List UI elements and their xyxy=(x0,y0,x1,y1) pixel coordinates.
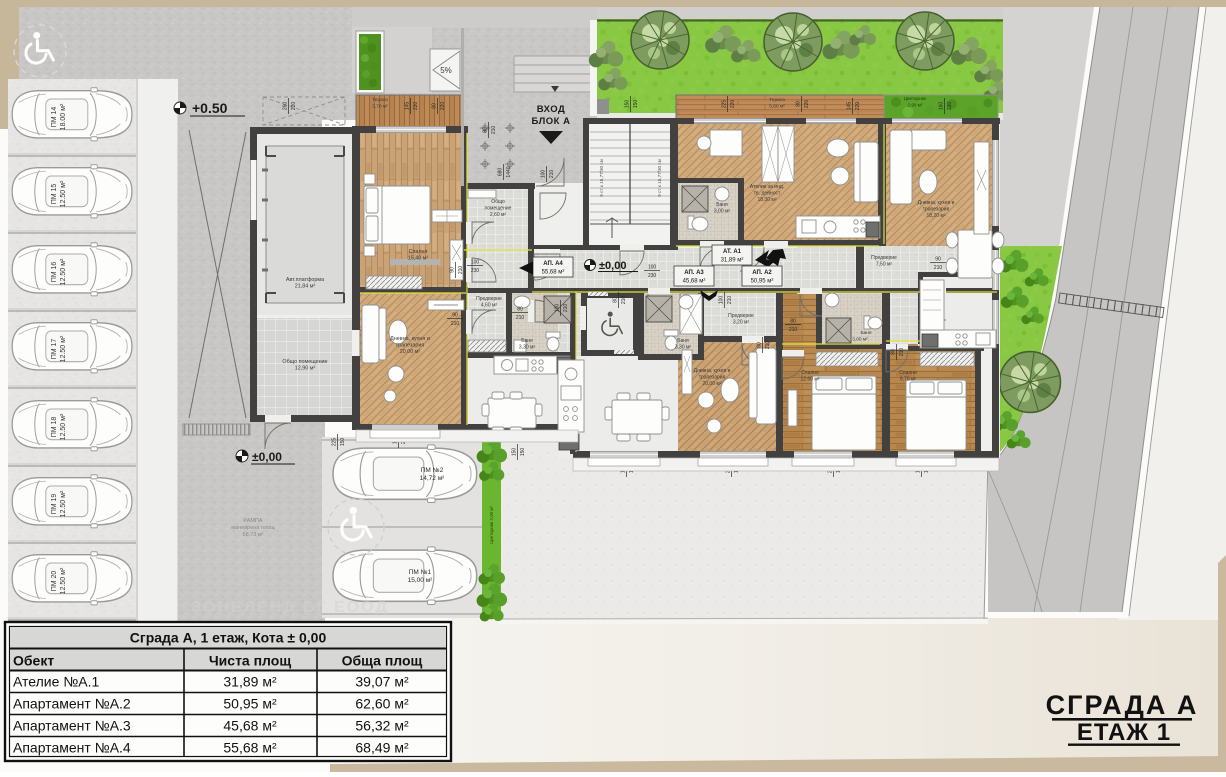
svg-text:3,20 м²: 3,20 м² xyxy=(733,319,750,325)
svg-text:2,60 м²: 2,60 м² xyxy=(490,212,507,218)
svg-text:АТ. А1: АТ. А1 xyxy=(723,249,742,255)
svg-text:Авт.платформа: Авт.платформа xyxy=(286,277,324,283)
svg-text:210: 210 xyxy=(934,265,943,271)
svg-text:220: 220 xyxy=(413,102,419,111)
svg-text:20,00 м²: 20,00 м² xyxy=(702,381,721,387)
svg-text:31,89 м²: 31,89 м² xyxy=(721,258,744,264)
svg-text:150: 150 xyxy=(633,100,639,109)
svg-text:210: 210 xyxy=(516,315,525,321)
svg-text:9 ст х 15,77/30 см: 9 ст х 15,77/30 см xyxy=(657,159,662,197)
svg-text:АП. А3: АП. А3 xyxy=(684,270,704,276)
svg-text:150: 150 xyxy=(512,448,518,457)
svg-text:Дневна, кухня и: Дневна, кухня и xyxy=(694,368,731,374)
svg-text:Дневна, кухня и: Дневна, кухня и xyxy=(918,200,955,206)
svg-text:55,68 м²: 55,68 м² xyxy=(542,270,565,276)
svg-text:100: 100 xyxy=(719,296,725,305)
svg-text:Апартамент №А.2: Апартамент №А.2 xyxy=(13,696,131,712)
svg-text:220: 220 xyxy=(855,102,861,111)
svg-text:12.50 м²: 12.50 м² xyxy=(60,413,67,440)
svg-text:Ателие №А.1: Ателие №А.1 xyxy=(13,674,100,690)
svg-text:100: 100 xyxy=(541,170,547,179)
svg-text:210: 210 xyxy=(451,321,460,327)
svg-text:145: 145 xyxy=(405,102,411,111)
svg-text:210: 210 xyxy=(765,341,771,350)
svg-text:80: 80 xyxy=(483,127,489,133)
svg-text:ПМ 15: ПМ 15 xyxy=(51,184,58,205)
svg-text:160: 160 xyxy=(939,102,945,111)
svg-text:+0.50: +0.50 xyxy=(192,100,228,116)
svg-text:Общо помещение: Общо помещение xyxy=(282,359,327,365)
svg-text:ПМ 20: ПМ 20 xyxy=(51,571,58,592)
svg-text:Баня: Баня xyxy=(860,330,871,336)
svg-text:230: 230 xyxy=(648,273,657,279)
svg-text:9,75 м²: 9,75 м² xyxy=(900,376,917,382)
svg-text:АП. А4: АП. А4 xyxy=(543,261,563,267)
svg-text:145: 145 xyxy=(847,102,853,111)
svg-text:39,07 м²: 39,07 м² xyxy=(355,674,409,690)
svg-text:ПМ 17: ПМ 17 xyxy=(51,339,58,360)
svg-text:55,68 м²: 55,68 м² xyxy=(223,740,277,756)
svg-text:Апартамент №А.4: Апартамент №А.4 xyxy=(13,740,131,756)
svg-text:Ателие за инд.: Ателие за инд. xyxy=(750,184,784,190)
svg-text:210: 210 xyxy=(899,348,905,357)
svg-text:56,32 м²: 56,32 м² xyxy=(355,718,409,734)
svg-text:СГРАДА А: СГРАДА А xyxy=(1046,690,1199,720)
svg-text:3,70 м²: 3,70 м² xyxy=(372,103,388,109)
svg-text:3,00 м²: 3,00 м² xyxy=(852,336,868,342)
svg-text:маневрена площ: маневрена площ xyxy=(231,525,275,531)
svg-text:Дневна, кухня и: Дневна, кухня и xyxy=(390,336,430,342)
svg-text:18.00 м²: 18.00 м² xyxy=(60,103,67,130)
svg-text:21,84 м²: 21,84 м² xyxy=(295,283,316,289)
svg-text:Общо: Общо xyxy=(491,199,505,205)
svg-text:225: 225 xyxy=(332,438,338,447)
svg-text:12.50 м²: 12.50 м² xyxy=(60,335,67,362)
svg-text:210: 210 xyxy=(491,126,497,135)
svg-text:15,00 м²: 15,00 м² xyxy=(408,577,434,584)
svg-text:260: 260 xyxy=(283,102,289,111)
svg-text:помещение: помещение xyxy=(485,205,512,211)
svg-text:210: 210 xyxy=(549,170,555,179)
svg-text:80: 80 xyxy=(796,101,802,107)
svg-text:45,68 м²: 45,68 м² xyxy=(223,718,277,734)
svg-text:68.73 м²: 68.73 м² xyxy=(243,532,264,538)
svg-text:Баня: Баня xyxy=(521,338,533,344)
svg-text:90: 90 xyxy=(452,313,458,319)
svg-text:9 ст х 15,77/30 см: 9 ст х 15,77/30 см xyxy=(599,159,604,197)
svg-text:БЛОК А: БЛОК А xyxy=(532,116,571,127)
svg-text:210: 210 xyxy=(563,304,569,313)
svg-text:150: 150 xyxy=(625,100,631,109)
svg-text:Баня: Баня xyxy=(677,338,689,344)
svg-text:62,60 м²: 62,60 м² xyxy=(355,696,409,712)
svg-text:90: 90 xyxy=(935,257,941,263)
svg-text:ВХОД: ВХОД xyxy=(537,104,566,115)
svg-text:50,95 м²: 50,95 м² xyxy=(751,279,774,285)
svg-text:220: 220 xyxy=(440,102,446,111)
svg-text:Спалня: Спалня xyxy=(801,370,819,376)
svg-text:18,20 м²: 18,20 м² xyxy=(926,213,945,219)
svg-text:2,90 м²: 2,90 м² xyxy=(908,102,923,107)
svg-text:ЕТАЖ 1: ЕТАЖ 1 xyxy=(1077,719,1171,746)
svg-text:90: 90 xyxy=(450,267,456,273)
svg-text:20,00 м²: 20,00 м² xyxy=(400,349,421,355)
svg-text:15,40 м²: 15,40 м² xyxy=(408,255,429,261)
svg-text:220: 220 xyxy=(804,100,810,109)
svg-text:ПМ 14: ПМ 14 xyxy=(51,107,58,128)
svg-text:12.50 м²: 12.50 м² xyxy=(60,258,67,285)
svg-text:100: 100 xyxy=(471,260,480,266)
svg-text:±0,00: ±0,00 xyxy=(599,260,626,272)
svg-text:14,72 м²: 14,72 м² xyxy=(420,475,446,482)
svg-text:1440: 1440 xyxy=(506,166,512,177)
svg-text:45,68 м²: 45,68 м² xyxy=(683,279,706,285)
svg-text:Обща площ: Обща площ xyxy=(342,653,423,669)
svg-text:Апартамент №А.3: Апартамент №А.3 xyxy=(13,718,131,734)
svg-text:230: 230 xyxy=(471,268,480,274)
svg-text:ПМ 18: ПМ 18 xyxy=(51,417,58,438)
svg-text:Тераса: Тераса xyxy=(769,97,785,103)
svg-text:3,30 м²: 3,30 м² xyxy=(675,344,692,350)
svg-text:Тераса: Тераса xyxy=(372,97,388,103)
svg-text:±0,00: ±0,00 xyxy=(252,450,282,464)
svg-text:Предверие: Предверие xyxy=(728,313,754,319)
svg-text:220: 220 xyxy=(947,102,953,111)
svg-text:Спалня: Спалня xyxy=(409,249,428,255)
svg-text:68,49 м²: 68,49 м² xyxy=(355,740,409,756)
svg-text:12,90 м²: 12,90 м² xyxy=(295,365,316,371)
svg-text:Предверие: Предверие xyxy=(871,255,897,261)
svg-text:Чиста площ: Чиста площ xyxy=(209,653,291,669)
svg-text:80: 80 xyxy=(517,307,523,313)
svg-text:трапезария: трапезария xyxy=(396,342,425,348)
svg-text:3,30 м²: 3,30 м² xyxy=(519,344,536,350)
svg-text:80: 80 xyxy=(432,103,438,109)
svg-text:Спалня: Спалня xyxy=(899,370,917,376)
svg-text:РАМПА: РАМПА xyxy=(243,518,263,524)
svg-text:Цветарник: Цветарник xyxy=(904,96,927,101)
svg-text:АП. А2: АП. А2 xyxy=(752,270,772,276)
svg-text:трапезария: трапезария xyxy=(699,374,726,380)
svg-text:150: 150 xyxy=(520,448,526,457)
svg-text:80: 80 xyxy=(790,319,796,325)
svg-text:Обект: Обект xyxy=(13,653,54,669)
svg-text:12,60 м²: 12,60 м² xyxy=(800,376,819,382)
svg-text:80: 80 xyxy=(613,297,619,303)
svg-text:5%: 5% xyxy=(440,66,452,75)
svg-text:4,60 м²: 4,60 м² xyxy=(481,302,498,308)
svg-text:ПМ 16: ПМ 16 xyxy=(51,262,58,283)
svg-text:5,60 м²: 5,60 м² xyxy=(769,103,785,109)
svg-text:12.50 м²: 12.50 м² xyxy=(60,567,67,594)
svg-text:Баня: Баня xyxy=(716,202,728,208)
svg-text:12.50 м²: 12.50 м² xyxy=(60,490,67,517)
svg-text:220: 220 xyxy=(730,100,736,109)
svg-text:225: 225 xyxy=(722,100,728,109)
svg-text:210: 210 xyxy=(458,266,464,275)
svg-text:210: 210 xyxy=(621,296,627,305)
svg-text:150: 150 xyxy=(340,438,346,447)
svg-text:680: 680 xyxy=(498,168,504,177)
svg-text:220: 220 xyxy=(291,102,297,111)
svg-text:100: 100 xyxy=(555,304,561,313)
svg-text:ПМ 19: ПМ 19 xyxy=(51,494,58,515)
svg-text:50,95 м²: 50,95 м² xyxy=(223,696,277,712)
svg-text:80: 80 xyxy=(757,342,763,348)
svg-text:12.50 м²: 12.50 м² xyxy=(60,180,67,207)
svg-text:210: 210 xyxy=(727,296,733,305)
svg-text:100: 100 xyxy=(648,265,657,271)
svg-text:ЗОНЕЛЕНД БГ ЕООД: ЗОНЕЛЕНД БГ ЕООД xyxy=(191,599,389,616)
svg-text:Сграда А, 1 етаж, Кота ± 0,00: Сграда А, 1 етаж, Кота ± 0,00 xyxy=(130,630,327,646)
svg-text:3,00 м²: 3,00 м² xyxy=(714,208,731,214)
svg-text:31,89 м²: 31,89 м² xyxy=(223,674,277,690)
svg-text:ПМ №2: ПМ №2 xyxy=(421,467,444,474)
svg-text:тв. дейност: тв. дейност xyxy=(754,189,781,196)
svg-text:Цветарник 3,00 м²: Цветарник 3,00 м² xyxy=(489,506,494,544)
svg-text:18,30 м²: 18,30 м² xyxy=(757,197,776,203)
svg-text:80: 80 xyxy=(891,349,897,355)
svg-text:трапезария: трапезария xyxy=(923,206,950,212)
svg-text:210: 210 xyxy=(789,327,798,333)
svg-text:Предверие: Предверие xyxy=(476,296,502,302)
svg-text:7,50 м²: 7,50 м² xyxy=(876,261,893,267)
svg-text:ПМ №1: ПМ №1 xyxy=(409,569,432,576)
